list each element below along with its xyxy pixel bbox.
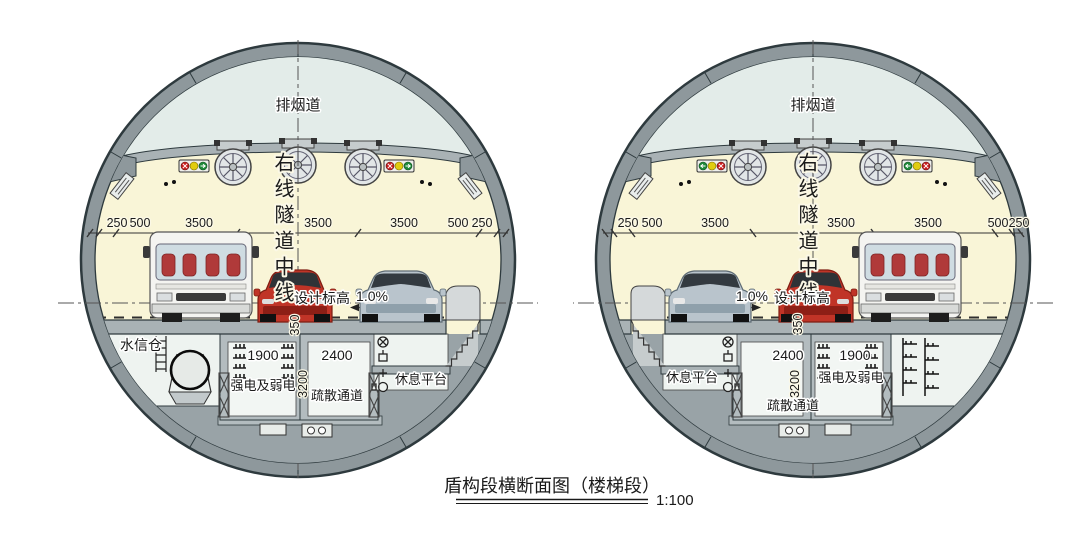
drawing-title: 盾构段横断面图（楼梯段） [444,476,660,496]
platform-label: 休息平台 [395,372,447,387]
evac-width-label: 2400 [321,347,352,363]
pipe-saddle [169,392,211,404]
evac-label: 疏散通道 [311,388,363,403]
smoke-duct-label: 排烟道 [275,97,320,114]
dim-3500: 3500 [827,216,855,230]
dim-350: 350 [288,315,302,336]
dim-500: 500 [448,216,469,230]
drawing-canvas: 排烟道 右线隧道中线 250 500 3500 3500 3500 500 25… [0,0,1080,541]
design-level-label: 设计标高 [774,290,830,306]
dim-500: 500 [130,216,151,230]
evac-width-label: 2400 [772,347,803,363]
dim-250: 250 [1009,216,1030,230]
power-label: 强电及弱电 [230,378,295,393]
evac-height-label: 3200 [296,370,310,398]
dim-350: 350 [791,314,805,335]
dim-250: 250 [472,216,493,230]
water-pipe [171,351,209,389]
evac-label: 疏散通道 [767,398,819,413]
design-level-label: 设计标高 [294,290,350,306]
tunnel-centerline-label: 右线隧道中线 [271,152,294,308]
dim-3500: 3500 [185,216,213,230]
dim-3500: 3500 [304,216,332,230]
platform-label: 休息平台 [666,370,718,385]
evac-height-label: 3200 [788,370,802,398]
dim-3500: 3500 [914,216,942,230]
dim-250: 250 [618,216,639,230]
slope-label: 1.0% [736,288,768,304]
dim-3500: 3500 [390,216,418,230]
power-width-label: 1900 [839,347,870,363]
water-bay-label: 水信仓 [120,337,162,353]
dim-3500: 3500 [701,216,729,230]
drawing-scale: 1:100 [656,492,694,509]
smoke-duct-label: 排烟道 [790,97,835,114]
power-label: 强电及弱电 [818,370,883,385]
power-width-label: 1900 [247,347,278,363]
dim-250: 250 [107,216,128,230]
dim-500: 500 [988,216,1009,230]
dim-500: 500 [642,216,663,230]
slope-label: 1.0% [356,288,388,304]
tunnel-centerline-label: 右线隧道中线 [795,152,818,308]
tunnel-cross-section-drawing: 排烟道 右线隧道中线 250 500 3500 3500 3500 500 25… [0,0,1080,541]
